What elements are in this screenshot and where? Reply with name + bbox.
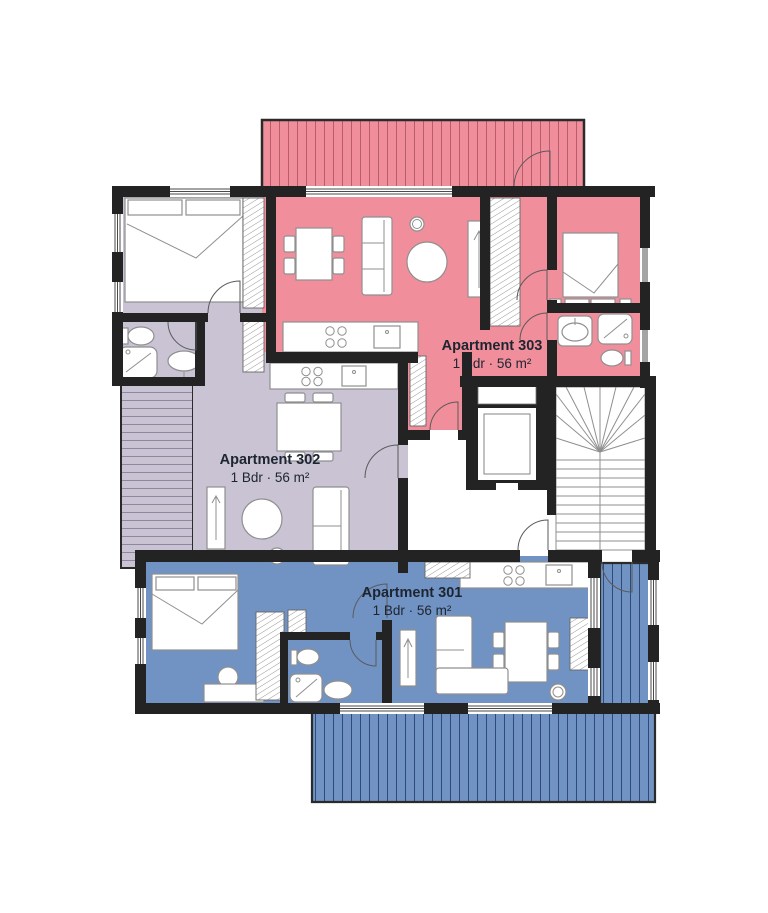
sofa-303 bbox=[362, 217, 392, 295]
apartment-303-spec: 1 Bdr · 56 m² bbox=[453, 356, 532, 371]
toilet-302 bbox=[128, 327, 154, 345]
window bbox=[588, 668, 600, 696]
window bbox=[640, 330, 650, 362]
wardrobe-301-hall bbox=[425, 562, 470, 578]
apartment-301-spec: 1 Bdr · 56 m² bbox=[373, 603, 452, 618]
wardrobe-301-bedroom bbox=[256, 612, 284, 700]
kitchen-sink-301 bbox=[546, 565, 572, 585]
window bbox=[135, 638, 146, 664]
elevator bbox=[466, 376, 548, 490]
wardrobe-301-living bbox=[570, 618, 590, 670]
wardrobe-303-corridor bbox=[490, 198, 520, 326]
sink-301 bbox=[324, 681, 352, 699]
pillow bbox=[186, 200, 240, 215]
toilet-301-tank bbox=[291, 650, 297, 665]
window bbox=[135, 588, 146, 618]
closet-301 bbox=[288, 610, 306, 634]
pillow bbox=[156, 577, 194, 590]
apartment-301-label: Apartment 301 bbox=[362, 585, 463, 601]
desk-301 bbox=[204, 684, 264, 702]
side-table-301 bbox=[550, 684, 566, 700]
floor-plan: Apartment 303 1 Bdr · 56 m² Apartment 30… bbox=[0, 0, 768, 913]
pillow bbox=[128, 200, 182, 215]
window bbox=[112, 282, 123, 312]
bed-303 bbox=[563, 233, 618, 297]
dining-table-301 bbox=[505, 622, 547, 682]
dining-table-303 bbox=[296, 228, 332, 280]
window bbox=[640, 248, 650, 282]
window bbox=[588, 578, 600, 628]
wardrobe-303-entry bbox=[410, 356, 426, 426]
coffee-table-303 bbox=[407, 242, 447, 282]
coffee-table-302 bbox=[242, 499, 282, 539]
kitchen-counter-302 bbox=[270, 363, 398, 389]
wardrobe-302-lower bbox=[243, 315, 264, 372]
apartment-302-spec: 1 Bdr · 56 m² bbox=[231, 470, 310, 485]
terrace-apartment-303 bbox=[262, 120, 584, 190]
kitchen-sink-302 bbox=[342, 366, 366, 386]
kitchen-sink-303 bbox=[374, 326, 400, 348]
window bbox=[648, 580, 659, 625]
window bbox=[306, 186, 452, 197]
apartment-302-label: Apartment 302 bbox=[220, 452, 321, 468]
pillow bbox=[198, 577, 236, 590]
wardrobe-302-upper bbox=[243, 198, 264, 308]
staircase bbox=[556, 387, 645, 550]
window bbox=[112, 214, 123, 252]
window bbox=[340, 703, 424, 714]
dining-table-302 bbox=[277, 403, 341, 451]
terrace-apartment-302 bbox=[121, 383, 193, 568]
sink-303 bbox=[562, 323, 588, 341]
apartment-303-label: Apartment 303 bbox=[442, 338, 543, 354]
window bbox=[468, 703, 552, 714]
toilet-303 bbox=[601, 350, 623, 366]
window bbox=[170, 186, 230, 197]
window bbox=[648, 662, 659, 700]
floor-plan-page: Apartment 303 1 Bdr · 56 m² Apartment 30… bbox=[0, 0, 768, 913]
toilet-301 bbox=[297, 649, 319, 665]
